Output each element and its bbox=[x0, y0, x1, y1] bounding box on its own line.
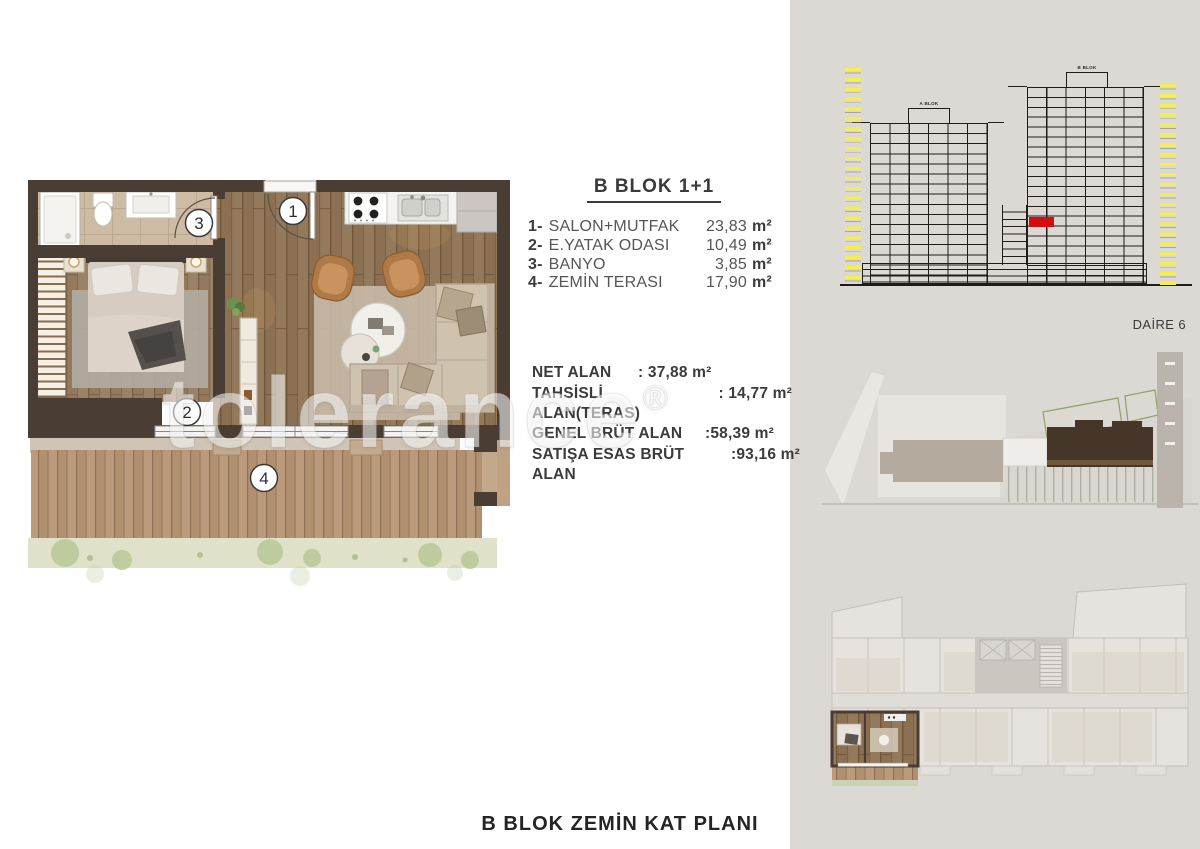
kitchen bbox=[345, 190, 497, 232]
roof-line bbox=[1008, 86, 1027, 87]
entrance-door bbox=[264, 181, 316, 239]
room-unit: m² bbox=[752, 237, 776, 256]
room-unit: m² bbox=[752, 218, 776, 237]
room-area: 10,49 bbox=[706, 237, 747, 256]
sink bbox=[398, 195, 448, 221]
room-label: BANYO bbox=[549, 256, 606, 275]
room-label: SALON+MUTFAK bbox=[549, 218, 680, 237]
brochure-page: { "unit_info": { "title": "B BLOK 1+1", … bbox=[0, 0, 1200, 849]
unit-title: B BLOK 1+1 bbox=[528, 176, 780, 203]
badge-3: 3 bbox=[194, 214, 203, 233]
room-label: E.YATAK ODASI bbox=[549, 237, 670, 256]
room-label: ZEMİN TERASI bbox=[549, 274, 663, 293]
roof-line bbox=[988, 122, 1004, 123]
stove bbox=[349, 193, 387, 223]
badge-4: 4 bbox=[259, 469, 268, 488]
area-value: :58,39 m² bbox=[705, 424, 774, 445]
unit-title-text: B BLOK 1+1 bbox=[587, 176, 721, 203]
bathroom-door bbox=[175, 196, 217, 239]
elevation-connector bbox=[1002, 205, 1027, 265]
room-row-teras: 4- ZEMİN TERASI 17,90 m² bbox=[528, 274, 776, 293]
room-num: 2- bbox=[528, 237, 543, 256]
room-list: 1- SALON+MUTFAK 23,83 m² 2- E.YATAK ODAS… bbox=[528, 218, 776, 293]
area-value: : 14,77 m² bbox=[714, 384, 792, 425]
level-markers-right bbox=[1160, 84, 1176, 286]
bed bbox=[86, 250, 186, 372]
coffee-table bbox=[351, 303, 405, 357]
room-num: 1- bbox=[528, 218, 543, 237]
armchair bbox=[309, 252, 357, 303]
room-row-salon: 1- SALON+MUTFAK 23,83 m² bbox=[528, 218, 776, 237]
tower-a-roof bbox=[908, 108, 950, 123]
room-area: 23,83 bbox=[706, 218, 747, 237]
kitchen-cabinet bbox=[457, 190, 497, 232]
tolerance-watermark: tolerance® bbox=[162, 356, 668, 471]
room-area: 17,90 bbox=[706, 274, 747, 293]
tower-a-label: A BLOK bbox=[908, 101, 950, 106]
area-value: :93,16 m² bbox=[726, 445, 800, 486]
level-markers-left bbox=[845, 68, 861, 286]
room-unit: m² bbox=[752, 274, 776, 293]
room-row-banyo: 3- BANYO 3,85 m² bbox=[528, 256, 776, 275]
tower-b-roof bbox=[1066, 72, 1108, 87]
room-num: 4- bbox=[528, 274, 543, 293]
tower-b-label: B BLOK bbox=[1066, 65, 1108, 70]
watermark-text: tolerance bbox=[162, 357, 643, 469]
bathroom-fixtures bbox=[40, 192, 176, 247]
armchair bbox=[379, 248, 428, 300]
badge-1: 1 bbox=[288, 202, 297, 221]
highlighted-apartment-marker bbox=[1029, 217, 1054, 227]
wardrobe bbox=[36, 248, 66, 398]
apartment-number-label: DAİRE 6 bbox=[1096, 317, 1186, 332]
page-caption: B BLOK ZEMİN KAT PLANI bbox=[420, 813, 820, 836]
registered-mark-icon: ® bbox=[643, 379, 668, 417]
tower-a-grid bbox=[870, 123, 988, 285]
room-unit: m² bbox=[752, 256, 776, 275]
bathroom-floor bbox=[38, 190, 213, 246]
room-row-yatak: 2- E.YATAK ODASI 10,49 m² bbox=[528, 237, 776, 256]
room-area: 3,85 bbox=[715, 256, 747, 275]
tower-b-grid bbox=[1027, 87, 1144, 285]
room-num: 3- bbox=[528, 256, 543, 275]
